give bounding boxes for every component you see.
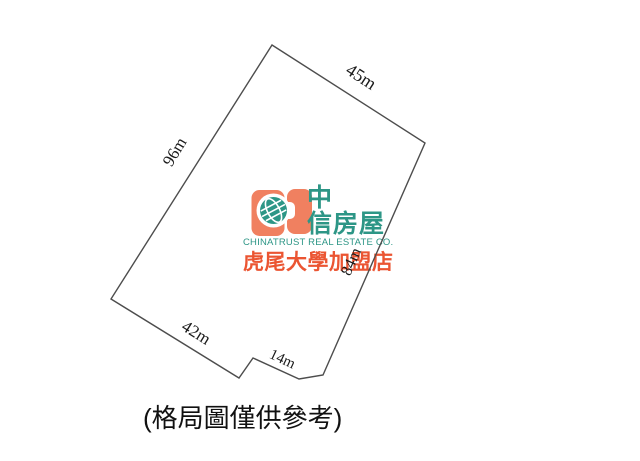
dimension-label-bottom-left: 42m xyxy=(178,317,214,350)
dimension-label-top-right: 45m xyxy=(342,59,380,94)
chinatrust-logo-mark xyxy=(249,187,315,237)
floor-plan-page: 中 信房屋 CHINATRUST REAL ESTATE CO. 虎尾大學加盟店… xyxy=(0,0,640,461)
reference-only-caption: (格局圖僅供參考) xyxy=(143,398,342,435)
dimension-label-bottom-middle: 14m xyxy=(266,347,297,374)
brand-name-line1: 中 xyxy=(307,186,385,212)
dimension-label-left: 96m xyxy=(159,134,192,170)
branch-name: 虎尾大學加盟店 xyxy=(243,246,394,276)
brand-name-cjk: 中 信房屋 xyxy=(307,186,385,238)
brand-name-line2: 信房屋 xyxy=(307,212,385,238)
